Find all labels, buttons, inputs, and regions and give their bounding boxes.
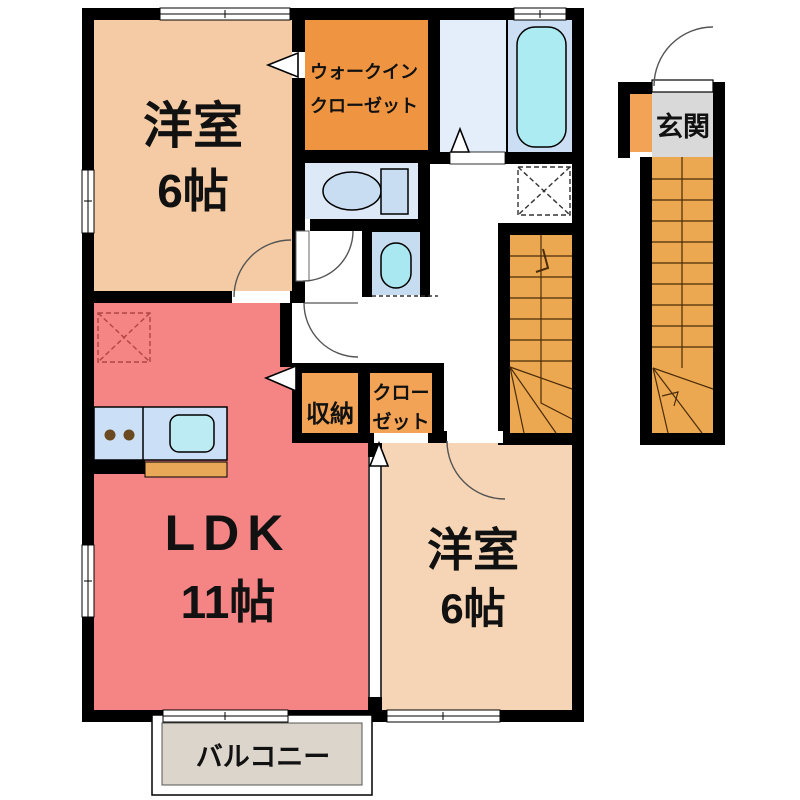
partition-body [368,443,382,710]
bedroom-bottom-door-gap [447,431,503,443]
closet-door-gap [374,433,428,443]
wall-vanity-top [362,222,430,232]
wall-washroom-bottom-a [428,152,450,164]
storage-label: 収納 [306,400,354,428]
wall-stairs-left [498,223,510,445]
kitchen-lower-strip [145,462,227,477]
room-walk-in-closet [305,20,428,150]
entrance-door-leaf [652,80,713,92]
ldk-bedroom-partition [368,443,382,710]
floor-plan: 洋室 6帖 ウォークイン クローゼット 玄関 収納 クロー ゼット LDK 11… [0,0,800,800]
floor-plan-canvas: 洋室 6帖 ウォークイン クローゼット 玄関 収納 クロー ゼット LDK 11… [0,0,800,800]
wall-stairs-top [498,223,584,235]
wic-label-line2: クローゼット [310,95,418,116]
wall-toilet-right [418,163,430,232]
closet-label-line2: ゼット [372,410,429,433]
wall-bedroom-top-right-a [292,8,305,52]
stove-burner-icon [105,430,116,441]
room-bedroom-bottom [382,443,572,710]
kitchen-lower-wall [94,460,145,474]
entrance-wall-left [618,82,630,158]
toilet-tank-icon [381,169,408,214]
entrance-shoe-cabinet [630,94,652,152]
bedroom-top-label: 洋室 [143,98,243,154]
closet-label-line1: クロー [372,382,429,404]
wall-wic-right [428,8,440,163]
balcony-label: バルコニー [196,742,330,772]
hall-patch [292,303,368,363]
internal-stairs [510,235,572,433]
stove-burner-icon [124,430,135,441]
bedroom-bottom-label: 洋室 [427,524,519,576]
ext-stairs-wall-left [640,157,652,445]
toilet-door-leaf [296,231,309,281]
wic-label-line1: ウォークイン [310,62,418,82]
wall-ldk-hall [280,303,292,367]
wall-wic-bottom [292,150,440,163]
bedroom-top-size: 6帖 [157,165,229,217]
ldk-label: LDK [165,505,292,561]
ldk-size: 11帖 [181,576,276,628]
wall-vanity-left [362,222,372,297]
entrance-wall-right [713,82,725,445]
bathtub-icon [517,27,566,147]
washbasin-icon [381,243,411,288]
washroom-door-gap [450,152,505,164]
kitchen-sink-icon [170,415,214,452]
partition-cap-bottom [368,697,382,710]
entrance-label: 玄関 [656,111,710,142]
toilet-bowl-icon [323,172,381,210]
bedroom-top-door-gap [232,291,290,303]
wall-vanity-right [420,232,430,297]
room-bedroom-top [94,20,292,291]
wall-washroom-bottom-b [505,152,584,164]
room-washroom [440,20,507,152]
ext-stairs-wall-bottom [640,433,725,445]
bedroom-bottom-size: 6帖 [440,585,505,632]
